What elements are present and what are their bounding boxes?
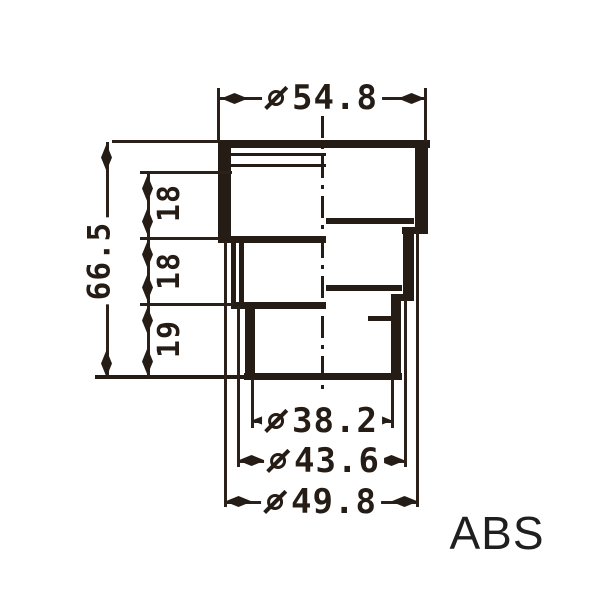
arrowhead-d54-left xyxy=(221,93,248,104)
wall-right-upper xyxy=(415,140,428,233)
ext-line-d43-left xyxy=(237,306,240,467)
dim-label-step-3: 19 xyxy=(154,316,186,362)
body-top-rim-line xyxy=(218,140,430,148)
dim-label-top-diameter: 54.8 xyxy=(262,80,382,116)
seat-line-right xyxy=(368,316,392,321)
wall-left-mid-inner xyxy=(239,241,244,308)
collar-line-lower xyxy=(220,164,326,167)
diameter-icon xyxy=(266,411,286,431)
dim-value-diameter-43: 43.6 xyxy=(294,444,380,478)
dim-label-diameter-38: 38.2 xyxy=(262,403,382,439)
dim-label-step-1: 18 xyxy=(154,180,186,226)
arrowhead-d54-right xyxy=(398,93,425,104)
diameter-icon xyxy=(265,492,285,512)
wall-left-upper xyxy=(218,140,231,241)
arrowhead-h66-top xyxy=(101,144,112,171)
technical-drawing-canvas: 54.8 66.5 18 18 19 38.2 43.6 49.8 ABS xyxy=(0,0,600,600)
diameter-icon xyxy=(268,451,288,471)
bottom-extension-line xyxy=(95,375,245,379)
wall-left-mid-outer xyxy=(231,241,236,308)
centerline xyxy=(321,116,324,392)
material-label: ABS xyxy=(449,506,544,560)
dim-value-step-3: 19 xyxy=(155,320,185,358)
ext-line-d49-left xyxy=(224,241,227,507)
dim-label-diameter-43: 43.6 xyxy=(264,443,384,479)
dim-value-diameter-49: 49.8 xyxy=(291,485,377,519)
shoulder-right-lower xyxy=(326,285,402,291)
ext-line-step-2 xyxy=(140,237,220,240)
ext-line-d43-right xyxy=(404,299,407,467)
dim-value-step-1: 18 xyxy=(155,184,185,222)
arrowhead-d43-left xyxy=(238,455,265,466)
arrowhead-h66-bottom xyxy=(101,350,112,377)
ext-line-d49-right xyxy=(416,231,419,507)
dim-value-diameter-38: 38.2 xyxy=(292,404,378,438)
collar-line-upper xyxy=(220,153,326,156)
wall-right-lower xyxy=(391,299,401,377)
ext-line-step-1 xyxy=(140,171,232,174)
ext-line-step-3 xyxy=(140,303,233,306)
arrowhead-d49-left xyxy=(225,496,252,507)
diameter-icon xyxy=(266,88,286,108)
wall-left-lower xyxy=(245,307,255,377)
ext-line-h66-top xyxy=(112,140,218,143)
dim-label-diameter-49: 49.8 xyxy=(261,484,381,520)
dim-label-total-height: 66.5 xyxy=(84,218,117,305)
dim-value-step-2: 18 xyxy=(155,252,185,290)
wall-right-mid xyxy=(403,231,414,300)
dim-value-top-diameter: 54.8 xyxy=(292,81,378,115)
shoulder-right-upper xyxy=(326,218,414,224)
dim-value-total-height: 66.5 xyxy=(85,222,116,301)
arrowhead-d49-right xyxy=(391,496,418,507)
dim-label-step-2: 18 xyxy=(154,248,186,294)
